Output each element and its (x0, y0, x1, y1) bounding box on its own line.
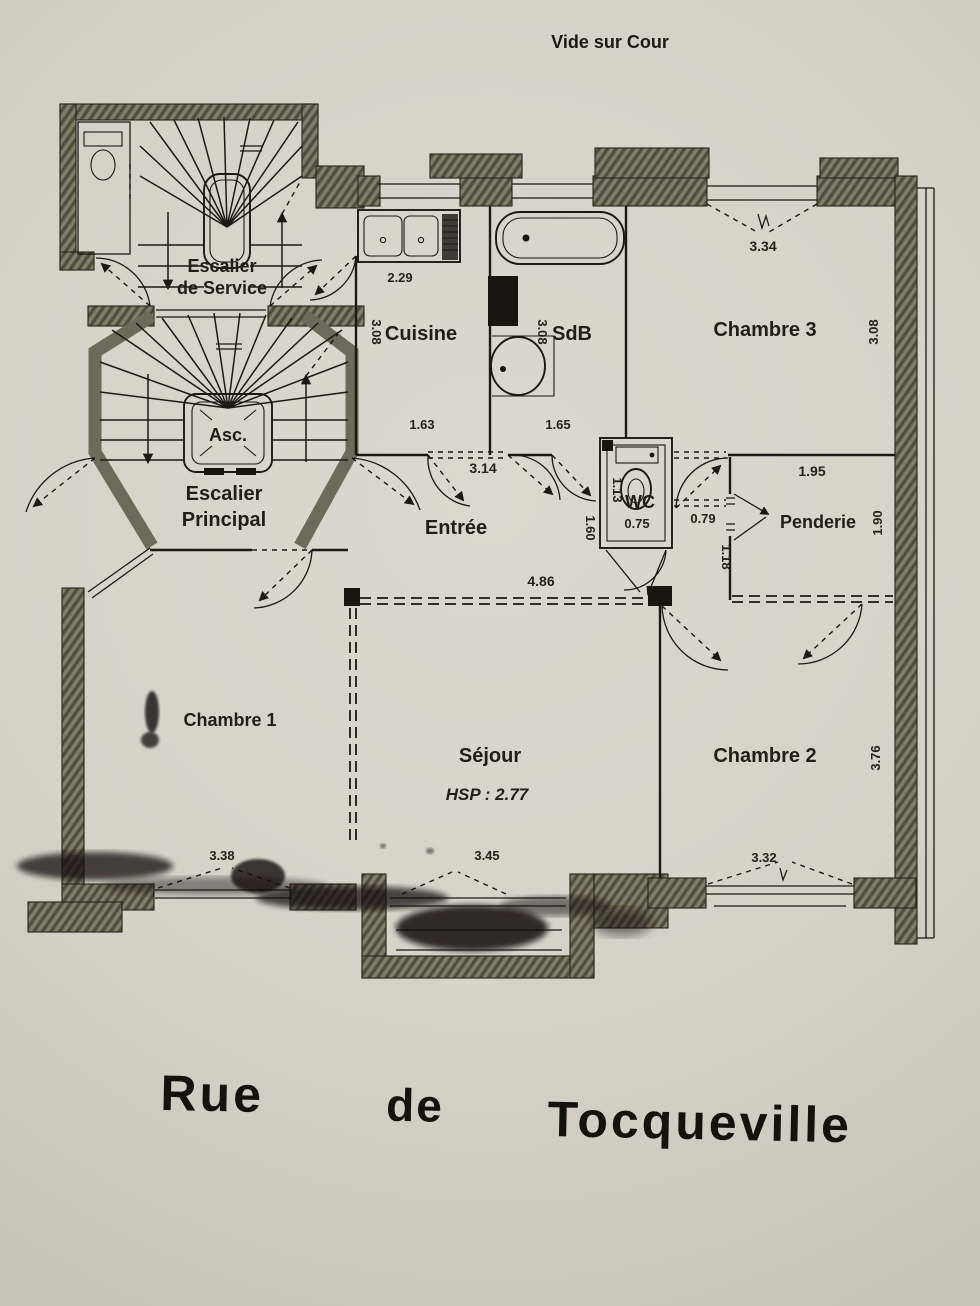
street-word-rue: Rue (160, 1065, 265, 1123)
sejour-ceiling-height: HSP : 2.77 (446, 785, 530, 804)
entree-width-dim: 4.86 (527, 573, 554, 589)
chambre2-window-dim: 3.32 (751, 850, 776, 865)
bathtub (496, 212, 624, 264)
wc-passage-dim: 0.79 (690, 511, 715, 526)
chambre3-depth-dim: 3.08 (866, 319, 881, 344)
room-chambre3: 3.34 Chambre 3 3.08 (713, 238, 881, 345)
wc-depth-dim: 1.13 (610, 477, 625, 502)
street-name: Rue de Tocqueville (160, 1065, 853, 1153)
street-word-de: de (386, 1079, 445, 1132)
sdb-width-dim: 1.65 (545, 417, 570, 432)
penderie-label: Penderie (780, 512, 856, 532)
cuisine-label: Cuisine (385, 323, 457, 345)
wc-width-dim: 0.75 (624, 516, 649, 531)
chambre2-depth-dim: 3.76 (868, 745, 883, 770)
penderie-width-dim: 1.95 (798, 463, 825, 479)
penderie-depth-dim: 1.90 (870, 510, 885, 535)
wc-right-dim: 1.18 (719, 544, 734, 569)
sejour-label: Séjour (459, 745, 521, 767)
chambre1-label: Chambre 1 (183, 710, 276, 730)
cuisine-width-dim: 1.63 (409, 417, 434, 432)
entree-label: Entrée (425, 517, 487, 539)
room-wc: 1.13 WC 0.75 1.60 0.79 1.18 (583, 438, 734, 594)
sejour-window-dim: 3.45 (474, 848, 499, 863)
elevator-label: Asc. (209, 425, 247, 445)
sdb-depth-dim: 3.08 (535, 319, 550, 344)
wc-left-dim: 1.60 (583, 515, 598, 540)
chambre1-window-dim: 3.38 (209, 848, 234, 863)
chambre3-window (707, 186, 817, 232)
chambre2-window (706, 862, 854, 906)
escalier-service-label-line1: Escalier (187, 256, 256, 276)
escalier-service-label-line2: de Service (177, 278, 267, 298)
exterior-walls (358, 148, 934, 944)
cuisine-depth-dim: 3.08 (369, 319, 384, 344)
principal-stair-block: Asc. Escalier Principal (26, 313, 420, 546)
courtyard-label: Vide sur Cour (551, 32, 669, 52)
service-stair-block: Escalier de Service (60, 104, 364, 326)
cuisine-counter-dim: 2.29 (387, 270, 412, 285)
sdb-window (512, 184, 593, 198)
kitchen-sink-counter (358, 210, 460, 262)
scanned-floor-plan-page: Vide sur Cour (0, 0, 980, 1306)
chambre3-window-dim: 3.34 (749, 238, 776, 254)
service-wc-room (78, 122, 130, 254)
escalier-principal-label-line1: Escalier (186, 483, 263, 505)
sdb-label: SdB (552, 323, 592, 345)
street-word-tocqueville: Tocqueville (547, 1091, 852, 1153)
chambre3-label: Chambre 3 (713, 319, 816, 341)
escalier-principal-label-line2: Principal (182, 509, 266, 531)
washbasin (491, 336, 554, 396)
room-chambre2: Chambre 2 3.76 3.32 (648, 604, 916, 908)
entree-door-dim: 3.14 (469, 460, 496, 476)
kitchen-window (378, 184, 460, 198)
room-penderie: 1.95 Penderie 1.90 (726, 457, 893, 602)
wc-label: WC (625, 492, 655, 512)
floor-plan-drawing: Vide sur Cour (0, 0, 980, 1306)
chambre2-label: Chambre 2 (713, 745, 816, 767)
